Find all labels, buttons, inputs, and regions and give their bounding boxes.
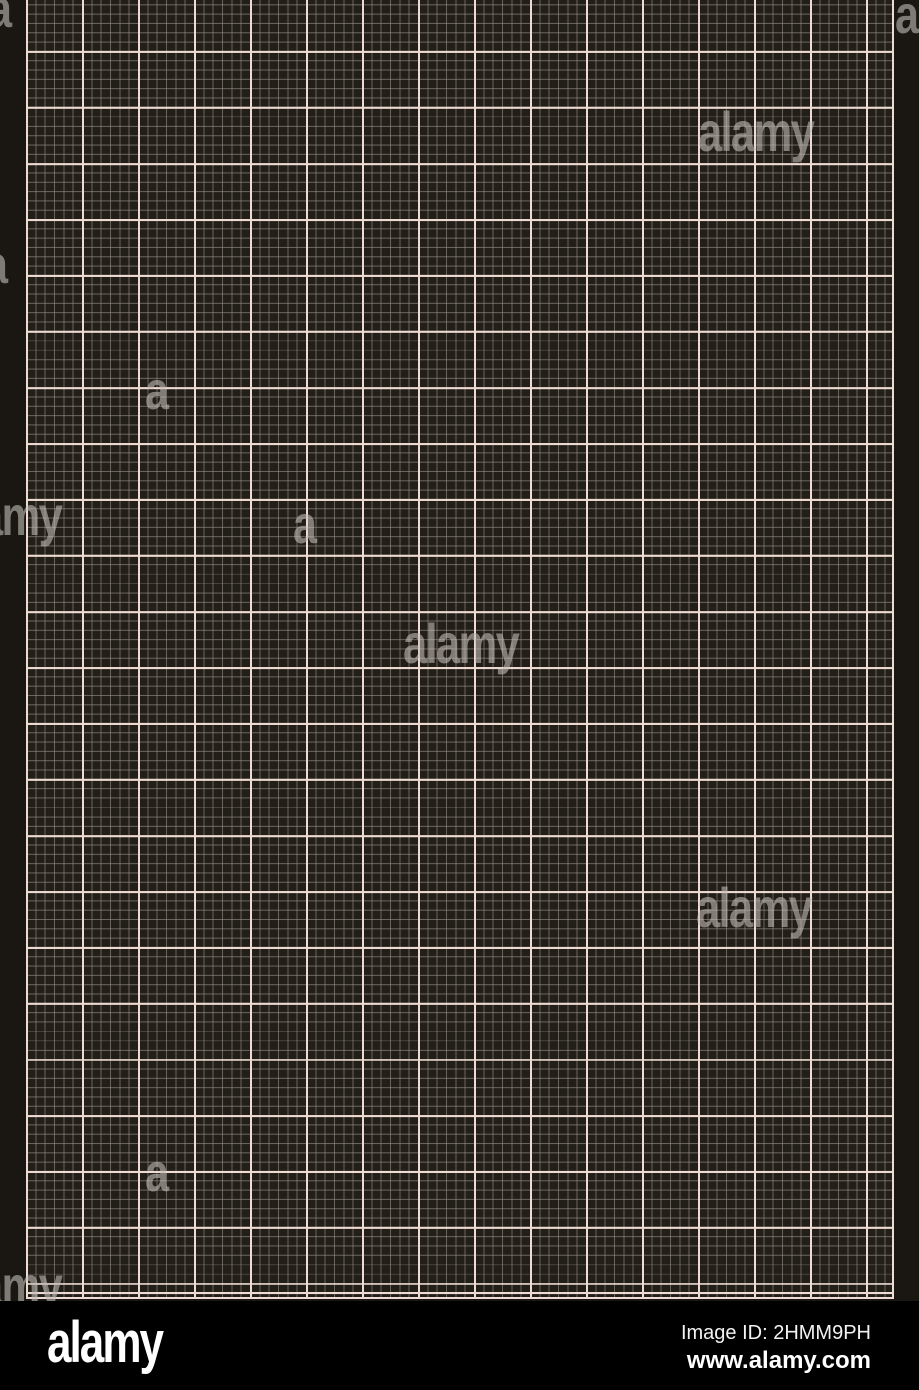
alamy-watermark-letter: a [0,238,6,292]
stock-photo-canvas: aaalamyaaalamyaalamyalamyaalamy alamy Im… [0,0,919,1390]
alamy-logo: alamy [47,1314,162,1372]
alamy-watermark-letter: a [895,0,917,42]
footer-info: Image ID: 2HMM9PH www.alamy.com [681,1322,871,1374]
image-id-text: Image ID: 2HMM9PH [681,1322,871,1344]
alamy-watermark-letter: a [0,0,10,36]
alamy-url-text: www.alamy.com [681,1348,871,1374]
graph-paper [26,0,894,1299]
